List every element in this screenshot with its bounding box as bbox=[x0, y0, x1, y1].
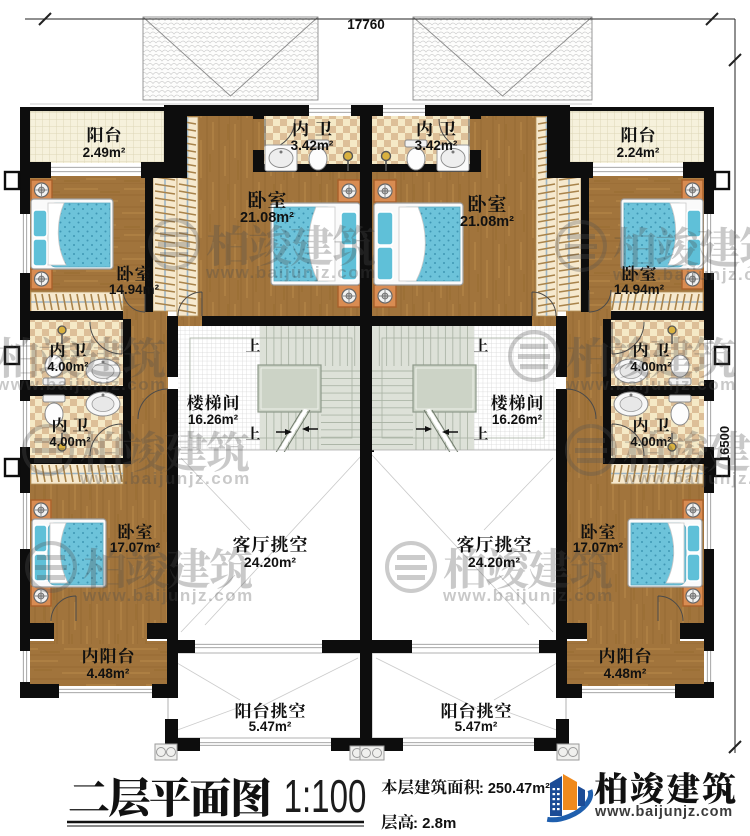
svg-text:24.20m²: 24.20m² bbox=[468, 554, 520, 570]
svg-text:3.42m²: 3.42m² bbox=[291, 138, 334, 153]
svg-text:4.00m²: 4.00m² bbox=[49, 434, 91, 449]
svg-text:14.94m²: 14.94m² bbox=[614, 282, 665, 297]
svg-text:www.baijunjz.com: www.baijunjz.com bbox=[565, 375, 737, 394]
svg-text:www.baijunjz.com: www.baijunjz.com bbox=[442, 586, 614, 605]
svg-text:www.baijunjz.com: www.baijunjz.com bbox=[594, 804, 733, 820]
svg-text:24.20m²: 24.20m² bbox=[244, 554, 296, 570]
svg-text:21.08m²: 21.08m² bbox=[460, 214, 514, 230]
svg-text:4.00m²: 4.00m² bbox=[47, 359, 89, 374]
svg-text:www.baijunjz.com: www.baijunjz.com bbox=[79, 469, 251, 488]
svg-text:5.47m²: 5.47m² bbox=[249, 719, 292, 734]
svg-text:4.00m²: 4.00m² bbox=[630, 434, 672, 449]
svg-text:www.baijunjz.com: www.baijunjz.com bbox=[622, 469, 750, 488]
svg-text:21.08m²: 21.08m² bbox=[240, 210, 294, 226]
svg-text:2.24m²: 2.24m² bbox=[617, 145, 660, 160]
svg-text:www.baijunjz.com: www.baijunjz.com bbox=[82, 586, 254, 605]
svg-text:: 2.8m: : 2.8m bbox=[413, 815, 456, 832]
svg-text:4.48m²: 4.48m² bbox=[604, 666, 647, 681]
svg-text:1:100: 1:100 bbox=[284, 772, 367, 822]
svg-text:17760: 17760 bbox=[347, 17, 385, 32]
svg-text:www.baijunjz.com: www.baijunjz.com bbox=[205, 263, 377, 282]
svg-text:3.42m²: 3.42m² bbox=[415, 138, 458, 153]
svg-text:www.baijunjz.com: www.baijunjz.com bbox=[0, 375, 167, 394]
svg-text:4.48m²: 4.48m² bbox=[87, 666, 130, 681]
svg-text:2.49m²: 2.49m² bbox=[83, 145, 126, 160]
svg-text:17.07m²: 17.07m² bbox=[110, 540, 161, 555]
svg-text:5.47m²: 5.47m² bbox=[455, 719, 498, 734]
svg-text:4.00m²: 4.00m² bbox=[630, 359, 672, 374]
svg-text:16.26m²: 16.26m² bbox=[188, 412, 239, 427]
svg-text:: 250.47m²: : 250.47m² bbox=[479, 781, 550, 797]
svg-text:14.94m²: 14.94m² bbox=[109, 282, 160, 297]
svg-text:16.26m²: 16.26m² bbox=[492, 412, 543, 427]
svg-text:17.07m²: 17.07m² bbox=[573, 540, 624, 555]
